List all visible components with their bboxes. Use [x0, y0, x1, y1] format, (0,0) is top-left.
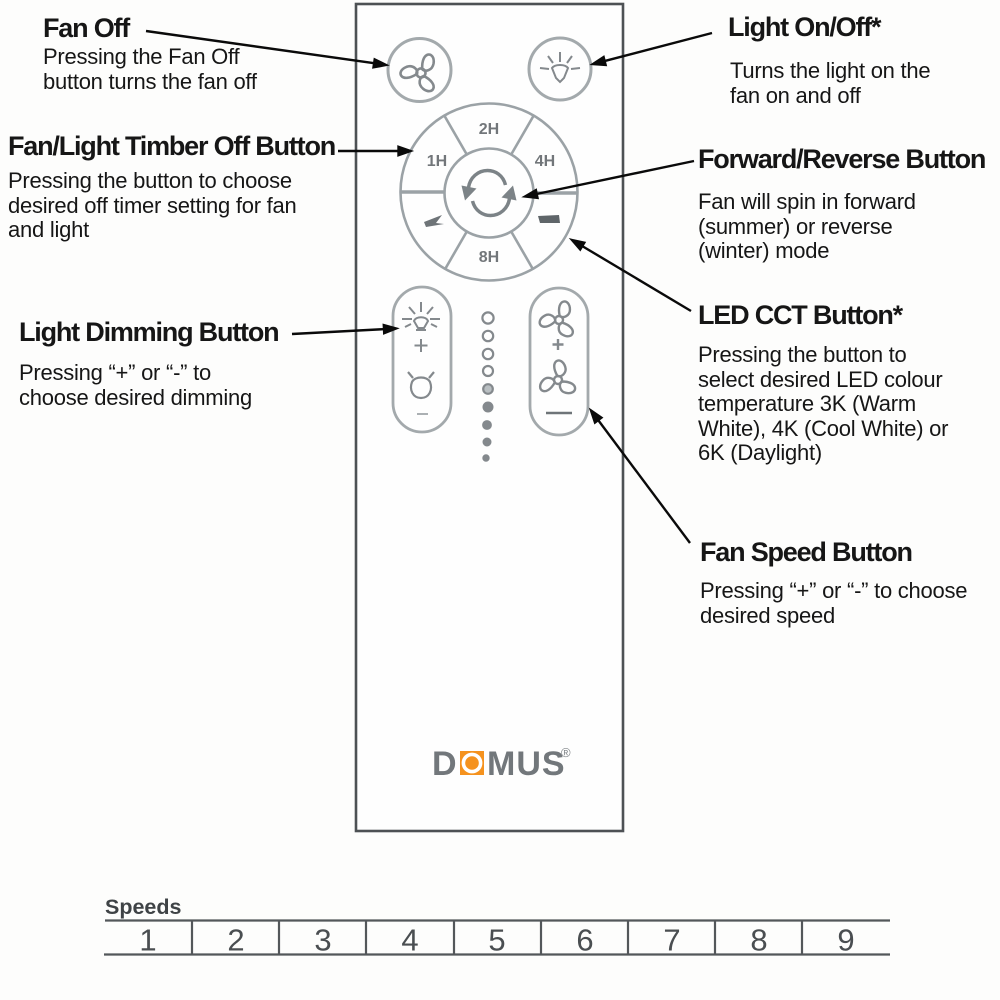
svg-text:6: 6	[576, 923, 593, 958]
svg-text:9: 9	[837, 923, 854, 958]
svg-text:8: 8	[750, 923, 767, 958]
svg-text:7: 7	[663, 923, 680, 958]
svg-text:1: 1	[139, 923, 156, 958]
svg-text:2: 2	[227, 923, 244, 958]
svg-text:4: 4	[401, 923, 418, 958]
svg-text:3: 3	[314, 923, 331, 958]
svg-text:5: 5	[488, 923, 505, 958]
